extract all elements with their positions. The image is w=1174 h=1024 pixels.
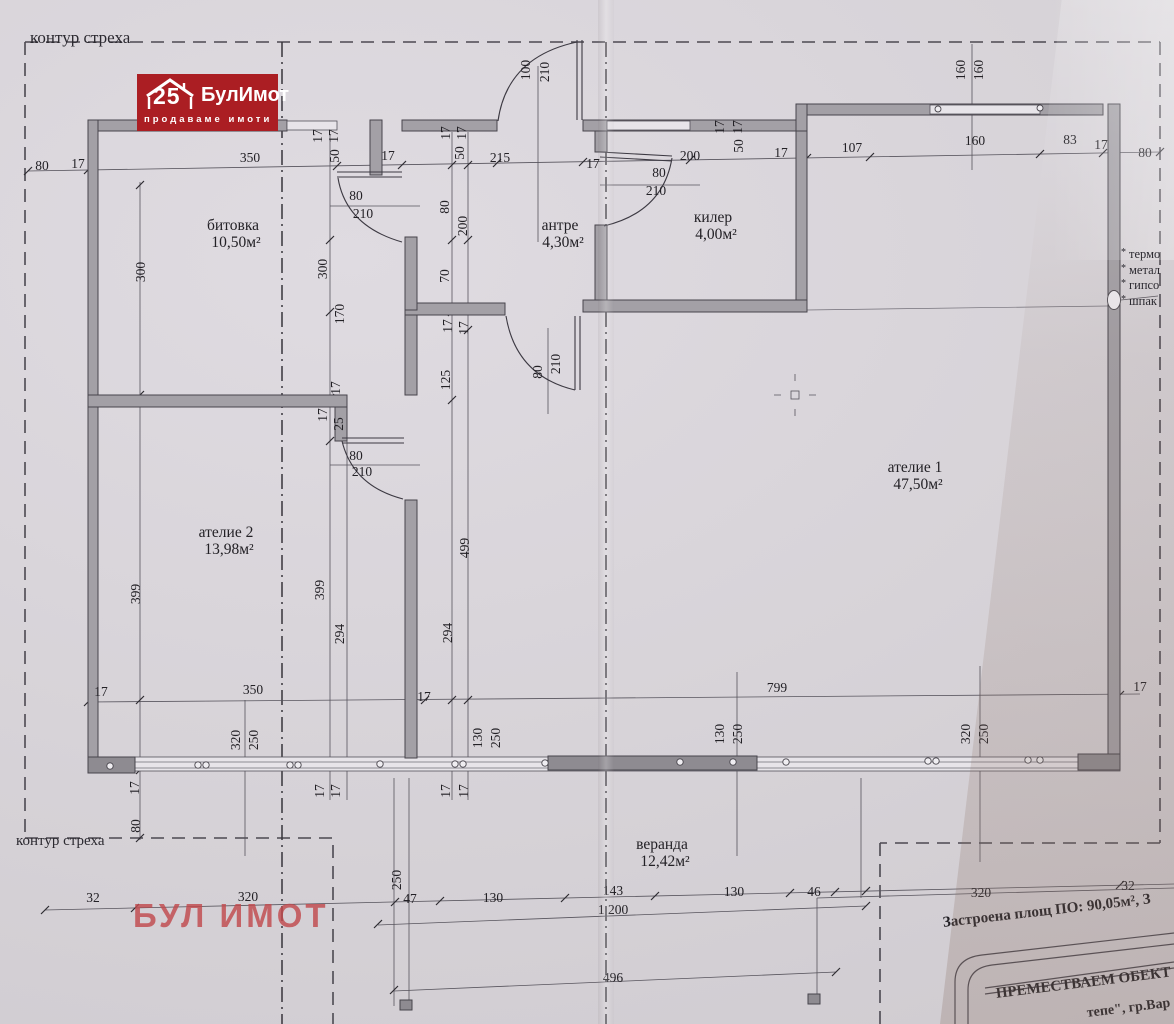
dimension-label: 294 bbox=[332, 624, 347, 645]
eave-contour-label-top: контур стреха bbox=[30, 28, 130, 48]
floor-plan-page: 8017350172151720017107160831780171750171… bbox=[0, 0, 1174, 1024]
dimension-label: 17 bbox=[586, 156, 600, 171]
dimension-label: 50 bbox=[452, 146, 467, 160]
watermark-text: БУЛ ИМОТ bbox=[133, 897, 329, 935]
dimension-ticks bbox=[24, 148, 1164, 994]
dimension-label: 799 bbox=[767, 680, 788, 695]
dimension-label: 250 bbox=[730, 724, 745, 745]
floor-plan-drawing: 8017350172151720017107160831780171750171… bbox=[0, 0, 1174, 1024]
dimension-label: 499 bbox=[457, 538, 472, 559]
dimension-label: 300 bbox=[315, 259, 330, 280]
dimension-label: 210 bbox=[548, 354, 563, 375]
dimension-label: 17 bbox=[712, 120, 727, 134]
dimension-label: 320 bbox=[971, 885, 992, 900]
dimension-label: 130 bbox=[483, 890, 504, 905]
dimension-label: 130 bbox=[470, 728, 485, 749]
dimension-label: 210 bbox=[352, 464, 373, 479]
dimension-label: 300 bbox=[133, 262, 148, 283]
dimension-label: 83 bbox=[1063, 132, 1077, 147]
dimension-label: 160 bbox=[953, 60, 968, 81]
dimension-label: 80 bbox=[128, 819, 143, 833]
dimension-label: 17 bbox=[326, 129, 341, 143]
dimension-label: 80 bbox=[652, 165, 666, 180]
logo-house-icon: 25 bbox=[144, 79, 196, 111]
dimension-label: 17 bbox=[328, 381, 343, 395]
logo-number: 25 bbox=[153, 83, 181, 110]
dimension-label: 17 bbox=[71, 156, 85, 171]
center-marker bbox=[774, 374, 816, 416]
dimension-label: 32 bbox=[86, 890, 100, 905]
dimension-label: 70 bbox=[437, 269, 452, 283]
dimension-label: 250 bbox=[389, 870, 404, 891]
eave-contour-label-bottom: контур стреха bbox=[16, 833, 104, 850]
dimension-label: 25 bbox=[331, 417, 346, 431]
note-item: *шпак bbox=[1121, 293, 1174, 309]
room-name: антре bbox=[542, 217, 579, 234]
dimension-label: 125 bbox=[438, 370, 453, 391]
dimension-label: 200 bbox=[680, 148, 701, 163]
dimension-label: 320 bbox=[228, 730, 243, 751]
bulimot-logo: 25 БулИмот продаваме имоти bbox=[137, 74, 278, 131]
dimension-label: 17 bbox=[730, 120, 745, 134]
dimension-label: 17 bbox=[456, 784, 471, 798]
pipe-symbol bbox=[1108, 291, 1121, 310]
note-bullet: * bbox=[1121, 294, 1126, 305]
room-name: ателие 2 bbox=[199, 524, 254, 541]
dimension-label: 350 bbox=[240, 150, 261, 165]
dimension-label: 200 bbox=[455, 216, 470, 237]
note-bullet: * bbox=[1121, 278, 1126, 289]
dimension-label: 350 bbox=[243, 682, 264, 697]
dimension-label: 130 bbox=[724, 884, 745, 899]
dimension-label: 250 bbox=[246, 730, 261, 751]
dimension-label: 170 bbox=[332, 304, 347, 325]
dimension-labels: 8017350172151720017107160831780171750171… bbox=[35, 60, 1152, 985]
note-item: *гипсо bbox=[1121, 277, 1174, 293]
dimension-label: 160 bbox=[965, 133, 986, 148]
room-name: веранда bbox=[636, 836, 688, 853]
window-symbols bbox=[107, 105, 1121, 769]
eave-contour-line bbox=[25, 42, 1160, 1024]
dimension-label: 17 bbox=[1094, 137, 1108, 152]
dimension-label: 17 bbox=[312, 784, 327, 798]
dimension-label: 47 bbox=[403, 891, 417, 906]
room-name: ателие 1 bbox=[888, 459, 943, 476]
dimension-label: 17 bbox=[94, 684, 108, 699]
dimension-label: 215 bbox=[490, 150, 511, 165]
dimension-label: 17 bbox=[438, 126, 453, 140]
room-name: битовка bbox=[207, 217, 259, 234]
dimension-label: 17 bbox=[438, 784, 453, 798]
dimension-label: 320 bbox=[958, 724, 973, 745]
dimension-label: 130 bbox=[712, 724, 727, 745]
dimension-label: 50 bbox=[327, 149, 342, 163]
dimension-label: 100 bbox=[518, 60, 533, 81]
dimension-label: 399 bbox=[128, 584, 143, 605]
room-area: 13,98м² bbox=[204, 541, 254, 558]
dimension-label: 17 bbox=[328, 784, 343, 798]
room-area: 47,50м² bbox=[893, 476, 943, 493]
dimension-label: 46 bbox=[807, 884, 821, 899]
dimension-label: 32 bbox=[1121, 878, 1135, 893]
dimension-label: 17 bbox=[1133, 679, 1147, 694]
dimension-label: 17 bbox=[454, 126, 469, 140]
axis-line bbox=[282, 42, 606, 1024]
dimension-label: 17 bbox=[381, 148, 395, 163]
dimension-label: 294 bbox=[440, 623, 455, 644]
dimension-label: 210 bbox=[353, 206, 374, 221]
dimension-label: 107 bbox=[842, 140, 863, 155]
dimension-label: 17 bbox=[310, 129, 325, 143]
room-name: килер bbox=[694, 209, 732, 226]
dimension-label: 250 bbox=[488, 728, 503, 749]
dimension-label: 80 bbox=[437, 200, 452, 214]
dimension-label: 210 bbox=[537, 62, 552, 83]
dimension-label: 80 bbox=[35, 158, 49, 173]
dimension-label: 17 bbox=[315, 408, 330, 422]
doors bbox=[337, 40, 672, 499]
note-bullet: * bbox=[1121, 263, 1126, 274]
dimension-label: 143 bbox=[603, 883, 624, 898]
room-area: 12,42м² bbox=[640, 853, 690, 870]
room-area: 4,30м² bbox=[542, 234, 584, 251]
dimension-label: 1 200 bbox=[598, 902, 629, 917]
dimension-label: 250 bbox=[976, 724, 991, 745]
dimension-label: 17 bbox=[440, 319, 455, 333]
logo-name: БулИмот bbox=[201, 84, 289, 107]
materials-notes: *термо*метал*гипсо*шпак bbox=[1121, 246, 1174, 308]
dimension-label: 160 bbox=[971, 60, 986, 81]
dimension-label: 80 bbox=[349, 448, 363, 463]
note-item: *метал bbox=[1121, 262, 1174, 278]
dimension-label: 17 bbox=[774, 145, 788, 160]
room-area: 10,50м² bbox=[211, 234, 261, 251]
dimension-label: 50 bbox=[731, 139, 746, 153]
dimension-label: 80 bbox=[1138, 145, 1152, 160]
dimension-label: 80 bbox=[349, 188, 363, 203]
note-item: *термо bbox=[1121, 246, 1174, 262]
dimension-label: 17 bbox=[456, 321, 471, 335]
room-area: 4,00м² bbox=[695, 226, 737, 243]
note-bullet: * bbox=[1121, 247, 1126, 258]
dimension-label: 496 bbox=[603, 970, 624, 985]
dimension-label: 17 bbox=[417, 689, 431, 704]
logo-tagline: продаваме имоти bbox=[144, 114, 271, 125]
dimension-label: 80 bbox=[530, 365, 545, 379]
dimension-label: 399 bbox=[312, 580, 327, 601]
dimension-label: 17 bbox=[127, 781, 142, 795]
dimension-label: 210 bbox=[646, 183, 667, 198]
